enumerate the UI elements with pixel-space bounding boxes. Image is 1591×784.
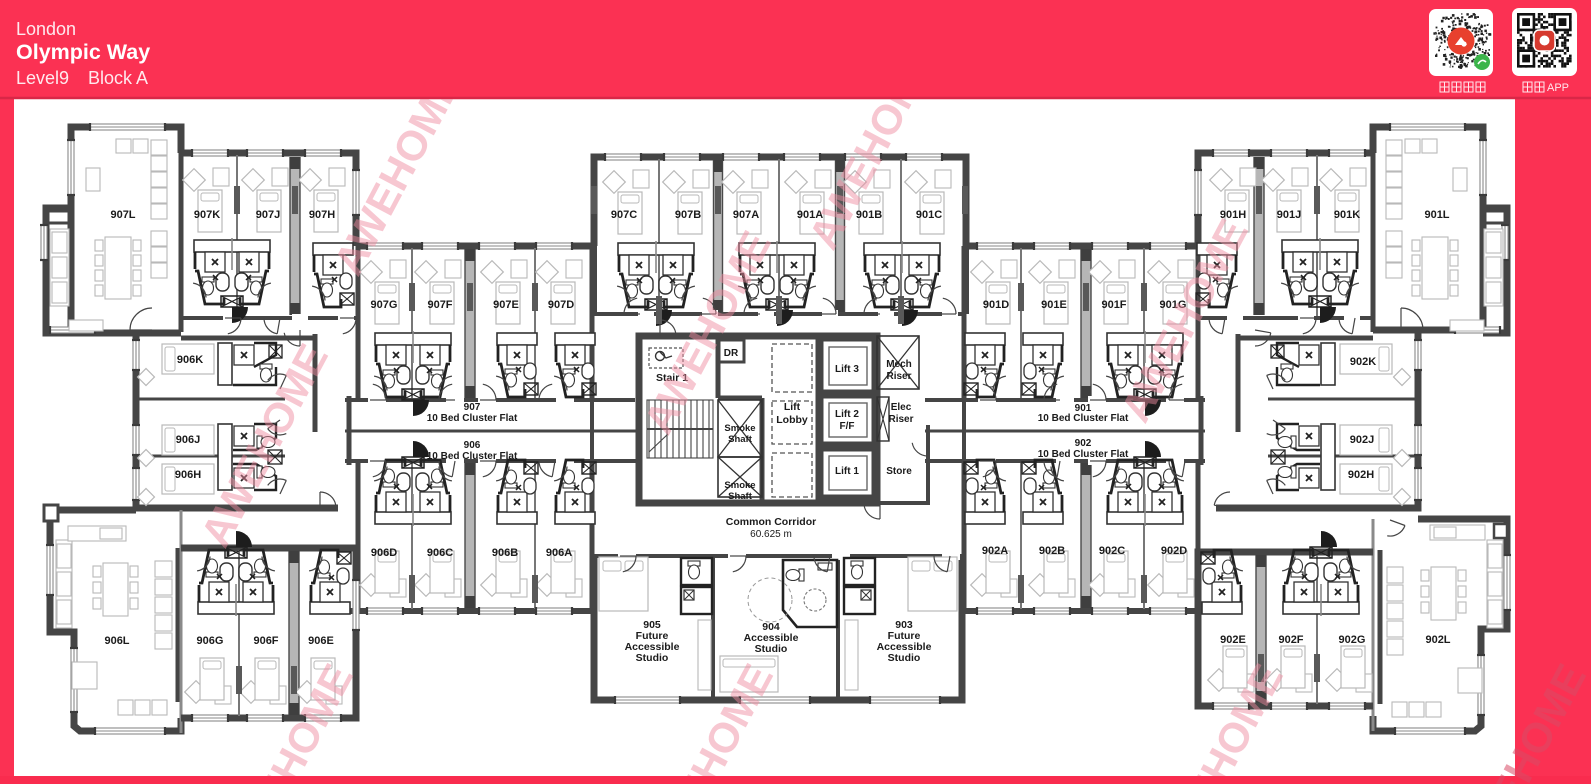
svg-text:907H: 907H: [309, 209, 335, 221]
svg-text:902: 902: [1075, 438, 1092, 449]
svg-text:901J: 901J: [1277, 209, 1301, 221]
svg-text:907F: 907F: [427, 299, 452, 311]
svg-text:901L: 901L: [1424, 209, 1449, 221]
svg-text:906: 906: [464, 440, 481, 451]
svg-text:907A: 907A: [733, 209, 759, 221]
svg-text:906E: 906E: [308, 635, 334, 647]
svg-text:Studio: Studio: [888, 652, 921, 664]
svg-text:Lobby: Lobby: [776, 414, 808, 426]
svg-text:902C: 902C: [1099, 545, 1125, 557]
svg-text:906L: 906L: [104, 635, 129, 647]
svg-text:902J: 902J: [1350, 434, 1374, 446]
svg-text:Lift 3: Lift 3: [835, 364, 859, 375]
svg-text:902E: 902E: [1220, 634, 1246, 646]
svg-text:Smoke: Smoke: [724, 423, 755, 434]
svg-text:Riser: Riser: [888, 414, 913, 425]
svg-text:906K: 906K: [177, 354, 203, 366]
svg-text:Block A: Block A: [88, 68, 148, 88]
svg-text:F/F: F/F: [840, 421, 855, 432]
svg-text:907B: 907B: [675, 209, 701, 221]
svg-text:906F: 906F: [253, 635, 278, 647]
svg-text:906D: 906D: [371, 547, 397, 559]
svg-text:Studio: Studio: [636, 652, 669, 664]
svg-text:Studio: Studio: [755, 643, 788, 655]
svg-text:906A: 906A: [546, 547, 572, 559]
svg-text:906H: 906H: [175, 469, 201, 481]
svg-text:Smoke: Smoke: [724, 480, 755, 491]
svg-text:902G: 902G: [1339, 634, 1366, 646]
svg-text:902A: 902A: [982, 545, 1008, 557]
svg-text:Lift 2: Lift 2: [835, 409, 859, 420]
svg-text:Riser: Riser: [886, 371, 911, 382]
svg-text:10 Bed Cluster Flat: 10 Bed Cluster Flat: [1038, 449, 1129, 460]
svg-text:10 Bed Cluster Flat: 10 Bed Cluster Flat: [1038, 413, 1129, 424]
svg-text:Elec: Elec: [891, 402, 912, 413]
svg-text:Lift: Lift: [784, 401, 801, 413]
svg-text:906B: 906B: [492, 547, 518, 559]
svg-text:Lift 1: Lift 1: [835, 466, 859, 477]
svg-text:10 Bed Cluster Flat: 10 Bed Cluster Flat: [427, 413, 518, 424]
svg-text:Shaft: Shaft: [728, 434, 753, 445]
svg-text:Common Corridor: Common Corridor: [726, 516, 816, 528]
svg-text:902D: 902D: [1161, 545, 1187, 557]
svg-text:901D: 901D: [983, 299, 1009, 311]
svg-text:906C: 906C: [427, 547, 453, 559]
svg-text:60.625 m: 60.625 m: [750, 529, 792, 540]
svg-text:907G: 907G: [371, 299, 398, 311]
svg-text:901E: 901E: [1041, 299, 1067, 311]
svg-text:Store: Store: [886, 466, 912, 477]
svg-text:902F: 902F: [1278, 634, 1303, 646]
svg-text:902H: 902H: [1348, 469, 1374, 481]
svg-text:Shaft: Shaft: [728, 491, 753, 502]
svg-text:902K: 902K: [1350, 356, 1376, 368]
svg-text:907C: 907C: [611, 209, 637, 221]
svg-text:901K: 901K: [1334, 209, 1360, 221]
svg-text:907E: 907E: [493, 299, 519, 311]
svg-text:Mech: Mech: [886, 359, 912, 370]
svg-text:907L: 907L: [110, 209, 135, 221]
svg-text:902L: 902L: [1425, 634, 1450, 646]
svg-text:APP: APP: [1547, 82, 1569, 94]
svg-text:DR: DR: [724, 348, 739, 359]
svg-text:907K: 907K: [194, 209, 220, 221]
svg-text:906J: 906J: [176, 434, 200, 446]
svg-text:907D: 907D: [548, 299, 574, 311]
svg-text:902B: 902B: [1039, 545, 1065, 557]
svg-text:901F: 901F: [1101, 299, 1126, 311]
svg-text:Olympic Way: Olympic Way: [16, 40, 150, 64]
svg-text:10 Bed Cluster Flat: 10 Bed Cluster Flat: [427, 451, 518, 462]
svg-text:907J: 907J: [256, 209, 280, 221]
svg-text:907: 907: [464, 402, 481, 413]
svg-text:London: London: [16, 19, 76, 39]
svg-text:Level9: Level9: [16, 68, 69, 88]
svg-text:901C: 901C: [916, 209, 942, 221]
svg-text:906G: 906G: [197, 635, 224, 647]
